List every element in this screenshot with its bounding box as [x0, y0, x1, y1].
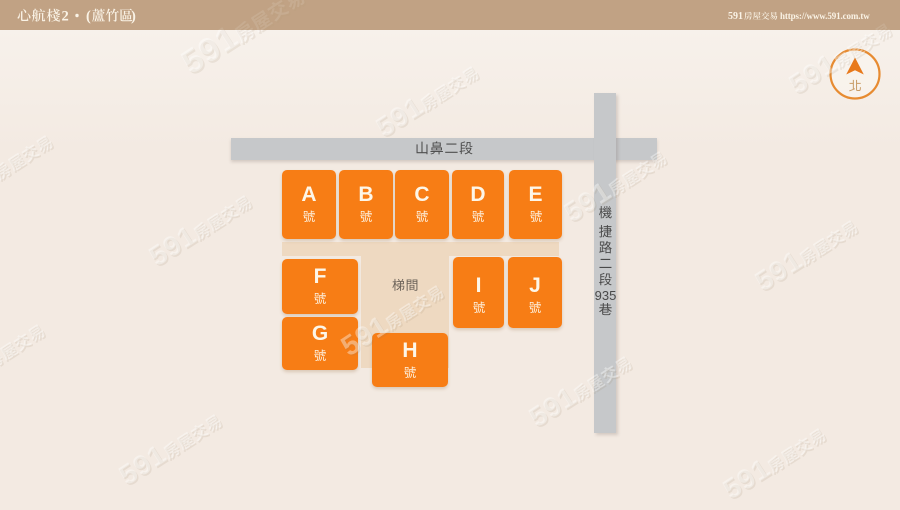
svg-text:935: 935 [595, 288, 617, 303]
svg-text:(: ( [86, 9, 91, 25]
svg-text:2: 2 [62, 9, 69, 25]
svg-text:): ) [131, 9, 136, 25]
svg-text:https://www.591.com.tw: https://www.591.com.tw [780, 11, 870, 21]
svg-text:591: 591 [728, 11, 743, 22]
